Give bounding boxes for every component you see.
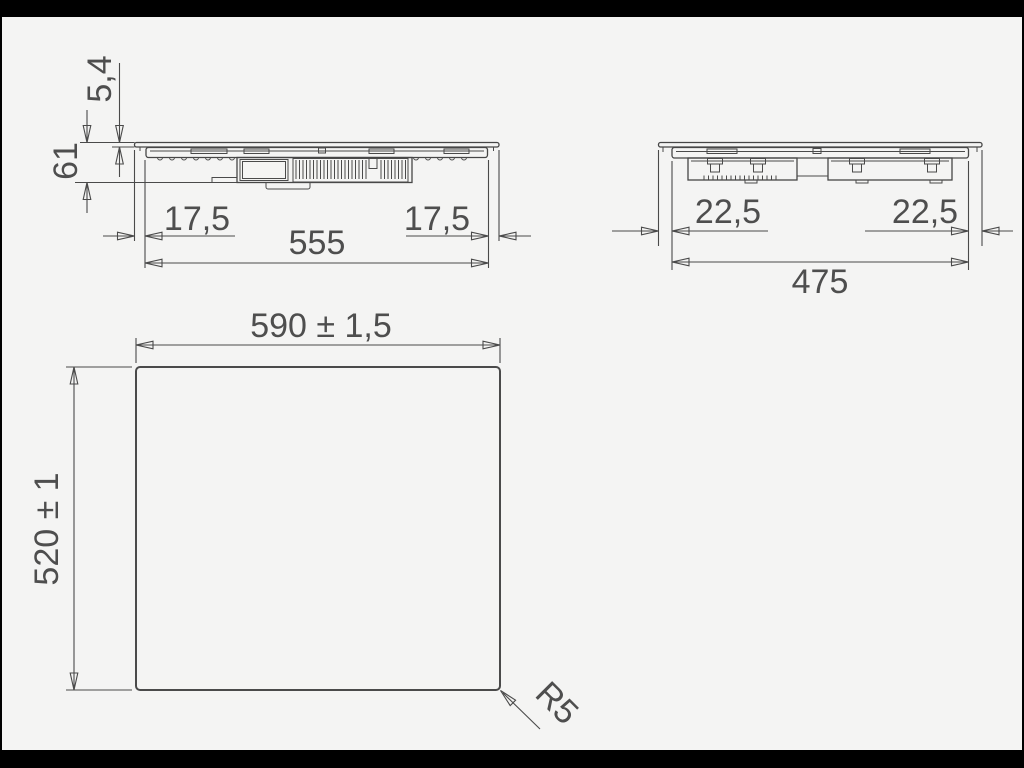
dim-top-depth-label: 520 ± 1 (28, 472, 66, 585)
dim-front-body-width-label: 555 (289, 224, 346, 262)
dim-front-total-height-label: 61 (47, 142, 85, 180)
dim-front-offset-right-label: 17,5 (404, 200, 470, 238)
dim-front-offset-left-label: 17,5 (164, 200, 230, 238)
dim-top-width-label: 590 ± 1,5 (250, 307, 392, 345)
paper-background (2, 17, 1022, 750)
dim-side-offset-left-label: 22,5 (695, 193, 761, 231)
dim-side-body-depth-label: 475 (792, 263, 849, 301)
front-heatsink-fins-left (296, 160, 366, 179)
dim-side-offset-right-label: 22,5 (892, 193, 958, 231)
drawing-canvas: 5,4 61 17,5 17,5 555 (0, 0, 1024, 768)
dim-front-glass-thickness-label: 5,4 (81, 55, 119, 102)
technical-drawing-page: 5,4 61 17,5 17,5 555 (0, 0, 1024, 768)
